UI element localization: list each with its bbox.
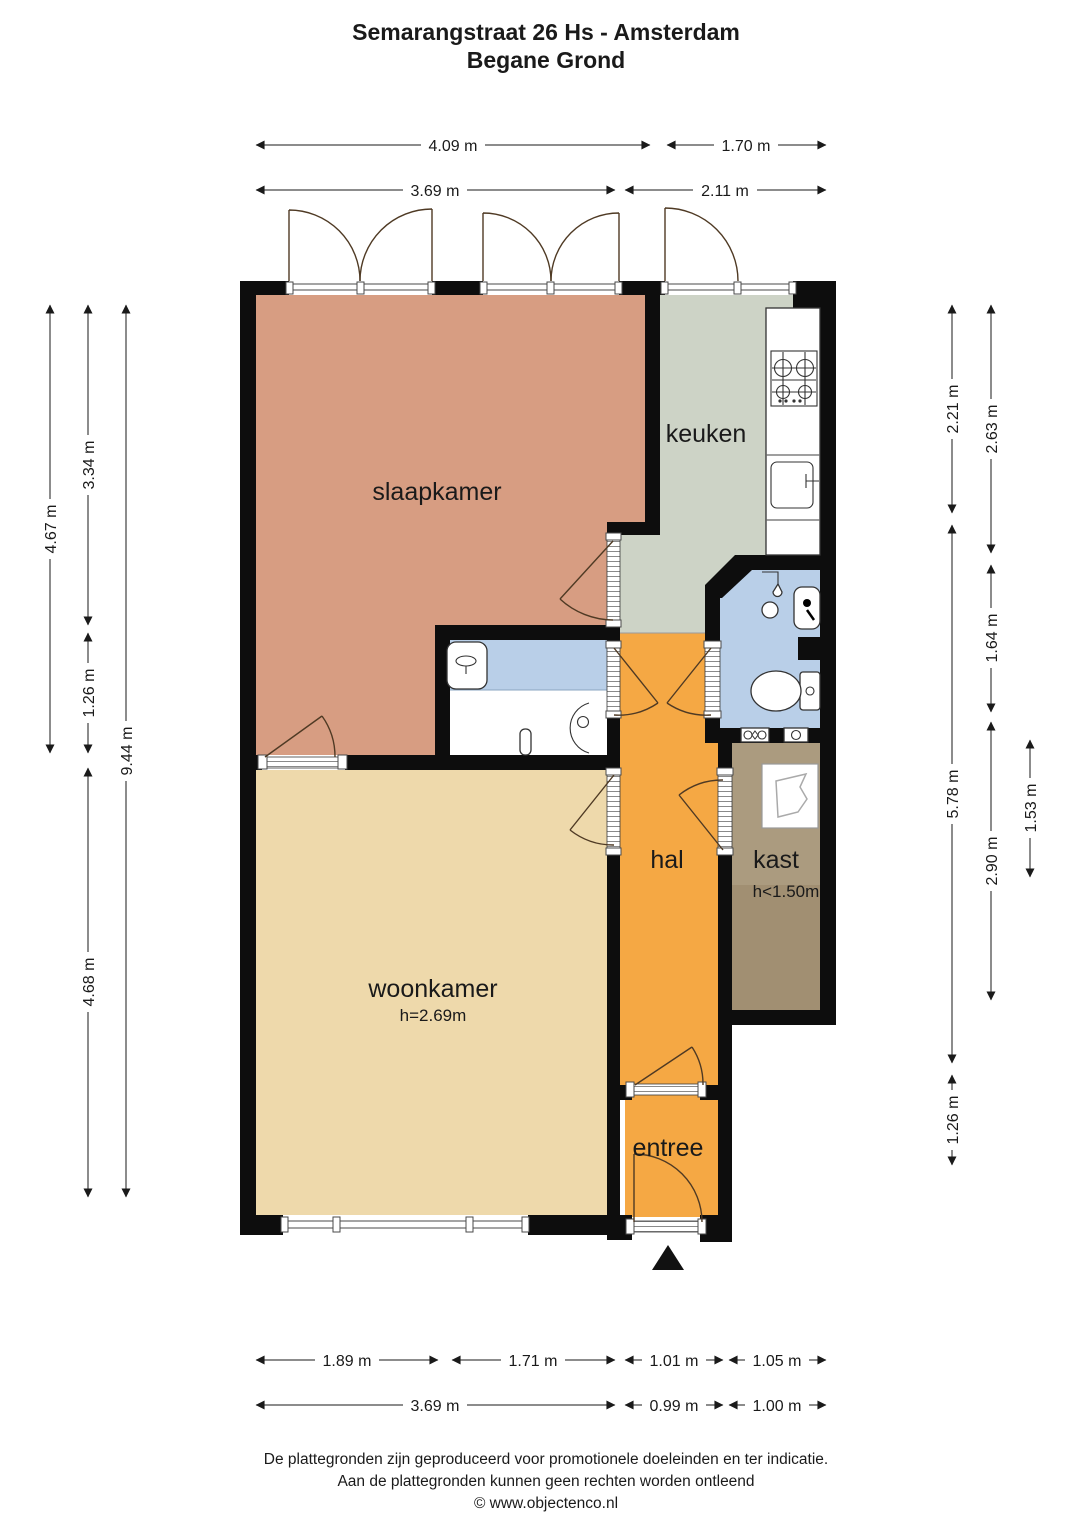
radiator-icon — [520, 729, 531, 755]
label-woonkamer-height: h=2.69m — [400, 1006, 467, 1025]
label-kast: kast — [753, 846, 799, 874]
toilet-niche — [798, 637, 820, 660]
dim-top-211: 2.11 m — [701, 183, 749, 200]
footer-line3: © www.objectenco.nl — [474, 1495, 618, 1512]
keuken-exterior-door — [665, 208, 738, 281]
dim-right-578: 5.78 m — [945, 770, 962, 819]
dim-left-334: 3.34 m — [81, 441, 98, 490]
dim-left-468: 4.68 m — [81, 958, 98, 1007]
label-keuken: keuken — [666, 420, 747, 448]
label-kast-height: h<1.50m — [753, 882, 820, 901]
toilet-icon — [751, 671, 820, 711]
dim-right-290: 2.90 m — [984, 837, 1001, 886]
french-door2-right — [551, 213, 619, 281]
dim-bot-100: 1.00 m — [753, 1398, 802, 1415]
label-slaapkamer: slaapkamer — [372, 478, 501, 506]
dim-left-467: 4.67 m — [43, 505, 60, 554]
label-hal: hal — [650, 846, 683, 874]
french-door-left — [289, 210, 360, 281]
dim-top-369: 3.69 m — [411, 183, 460, 200]
bathtub-icon — [447, 642, 487, 689]
dim-left-944: 9.44 m — [119, 727, 136, 776]
badkamer-door-strip — [607, 645, 620, 715]
slaapkamer-woonkamer-threshold — [258, 755, 347, 769]
page-title: Semarangstraat 26 Hs - Amsterdam — [352, 19, 740, 45]
floorplan-page: Semarangstraat 26 Hs - Amsterdam Begane … — [0, 0, 1080, 1527]
page-subtitle: Begane Grond — [467, 47, 625, 73]
window-keuken — [665, 284, 793, 290]
dim-left-126: 1.26 m — [81, 669, 98, 718]
front-door-threshold — [626, 1219, 706, 1234]
dim-right-263: 2.63 m — [984, 405, 1001, 454]
dim-bot-369: 3.69 m — [411, 1398, 460, 1415]
dim-bot-105: 1.05 m — [753, 1353, 802, 1370]
dim-bot-099: 0.99 m — [650, 1398, 699, 1415]
footer: De plattegronden zijn geproduceerd voor … — [264, 1451, 828, 1512]
room-kast-lower — [732, 885, 820, 1010]
french-door-right — [360, 209, 432, 281]
window-woonkamer — [281, 1217, 529, 1232]
footer-line2: Aan de plattegronden kunnen geen rechten… — [337, 1473, 754, 1490]
dim-top-170: 1.70 m — [722, 138, 771, 155]
dim-right-153: 1.53 m — [1023, 784, 1040, 833]
floor-plan-svg: Semarangstraat 26 Hs - Amsterdam Begane … — [0, 0, 1080, 1527]
label-entree: entree — [633, 1134, 704, 1162]
kast-door-strip — [718, 772, 732, 852]
toilet-door-strip — [705, 645, 720, 715]
hal-entree-threshold — [626, 1082, 706, 1097]
label-woonkamer: woonkamer — [367, 975, 497, 1003]
dim-bot-189: 1.89 m — [323, 1353, 372, 1370]
dim-top-409: 4.09 m — [429, 138, 478, 155]
dim-bot-171: 1.71 m — [509, 1353, 558, 1370]
kitchen-counter — [766, 308, 820, 555]
french-door2-left — [483, 213, 551, 281]
entrance-arrow-icon — [652, 1245, 684, 1270]
woonkamer-door-strip — [607, 772, 620, 852]
toilet-basin-icon — [794, 587, 820, 629]
dim-right-126: 1.26 m — [945, 1096, 962, 1145]
dim-right-164: 1.64 m — [984, 614, 1001, 663]
slaapkamer-door-strip — [607, 537, 620, 625]
footer-line1: De plattegronden zijn geproduceerd voor … — [264, 1451, 828, 1468]
dim-right-221: 2.21 m — [945, 385, 962, 434]
dim-bot-101: 1.01 m — [650, 1353, 699, 1370]
boiler-icon — [762, 764, 818, 828]
